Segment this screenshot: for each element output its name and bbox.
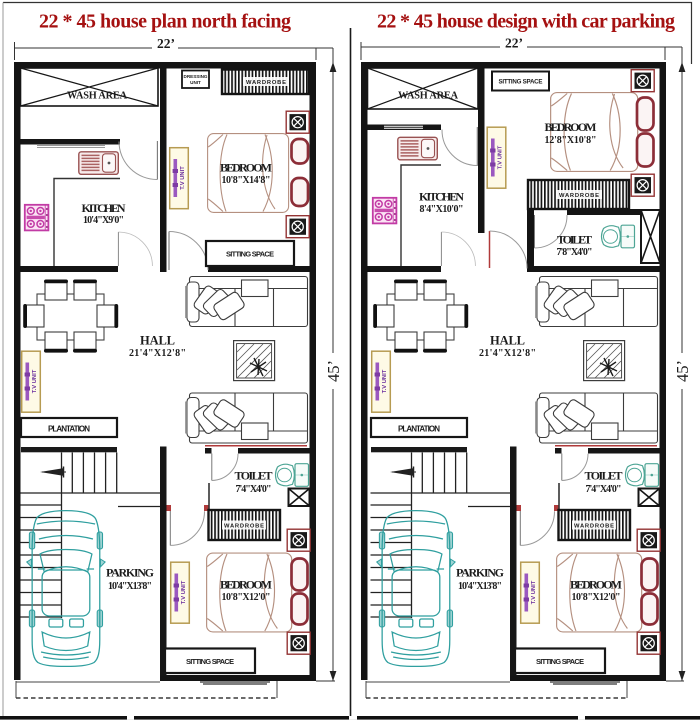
svg-text:DRESSING: DRESSING <box>184 74 208 79</box>
svg-text:45’: 45’ <box>673 360 692 382</box>
svg-text:7'8"X4'0": 7'8"X4'0" <box>557 247 593 258</box>
svg-text:BEDROOM: BEDROOM <box>220 161 272 175</box>
svg-text:KITCHEN: KITCHEN <box>419 190 464 204</box>
svg-text:WARDROBE: WARDROBE <box>559 193 599 199</box>
svg-text:22 * 45 house plan north facin: 22 * 45 house plan north facing <box>39 11 291 33</box>
svg-text:22’: 22’ <box>157 36 175 51</box>
svg-text:WASH AREA: WASH AREA <box>398 91 459 102</box>
svg-text:22 * 45 house design with car: 22 * 45 house design with car parking <box>377 11 675 33</box>
svg-text:10'8"X14'8": 10'8"X14'8" <box>222 175 271 186</box>
svg-text:TOILET: TOILET <box>557 233 592 247</box>
svg-text:8'4"X10'0": 8'4"X10'0" <box>420 204 464 215</box>
svg-text:12'8"X10'8": 12'8"X10'8" <box>545 135 597 146</box>
svg-text:10'4"X9'0": 10'4"X9'0" <box>83 215 124 226</box>
svg-text:SITTING SPACE: SITTING SPACE <box>226 250 274 259</box>
svg-text:BEDROOM: BEDROOM <box>545 120 597 134</box>
svg-text:KITCHEN: KITCHEN <box>82 201 126 215</box>
svg-text:UNIT: UNIT <box>190 80 201 85</box>
svg-text:WASH AREA: WASH AREA <box>67 91 128 102</box>
svg-text:22’: 22’ <box>505 36 523 51</box>
svg-text:45’: 45’ <box>324 360 343 382</box>
svg-text:SITTING SPACE: SITTING SPACE <box>499 79 543 86</box>
svg-text:WARDROBE: WARDROBE <box>246 80 286 86</box>
